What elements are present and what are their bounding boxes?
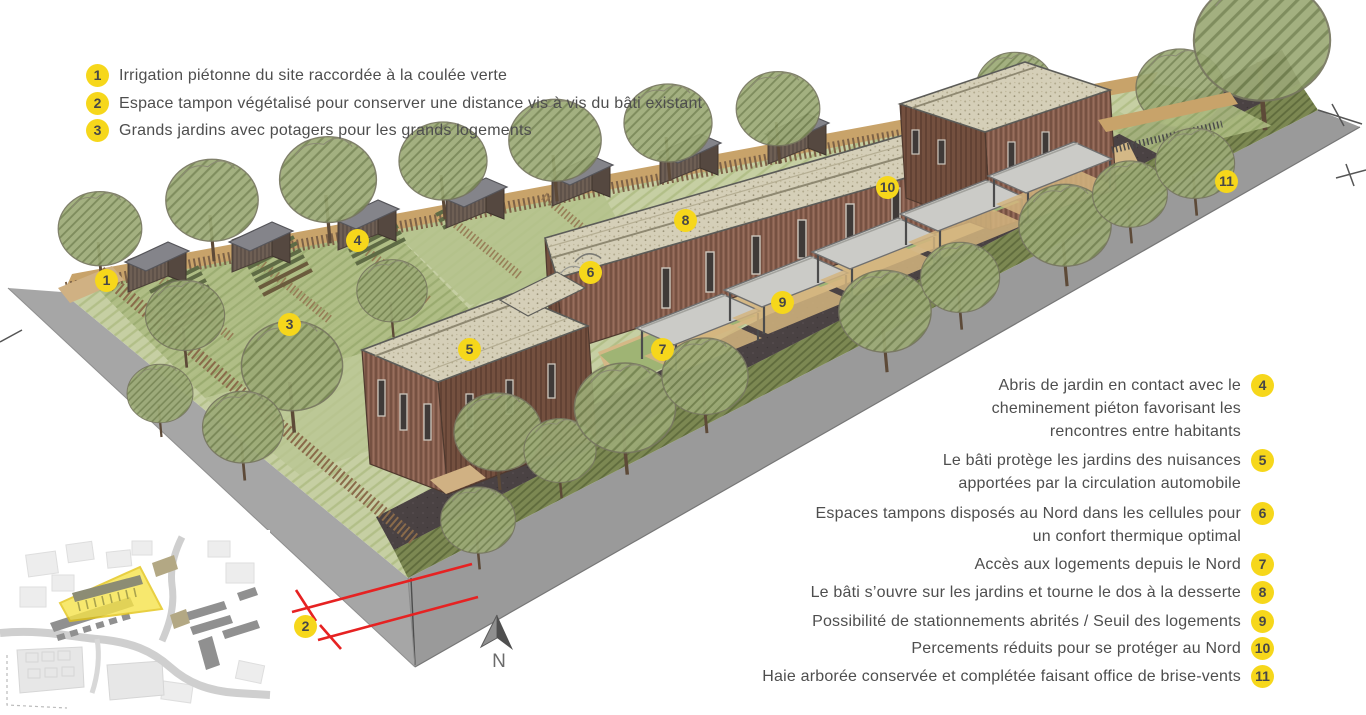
marker-badge-2: 2 [294,615,317,638]
marker-badge-5: 5 [458,338,481,361]
legend-badge-4: 4 [1251,374,1274,397]
legend-label-3: Grands jardins avec potagers pour les gr… [119,119,532,142]
marker-badge-3: 3 [278,313,301,336]
legend-badge-2: 2 [86,92,109,115]
legend-label-5: Le bâti protège les jardins des nuisance… [943,449,1241,495]
legend-label-8: Le bâti s’ouvre sur les jardins et tourn… [811,581,1241,604]
legend-item-7: Accès aux logements depuis le Nord 7 [975,553,1275,576]
legend-item-8: Le bâti s’ouvre sur les jardins et tourn… [811,581,1274,604]
legend-badge-5: 5 [1251,449,1274,472]
marker-badge-10: 10 [876,176,899,199]
legend-item-6: Espaces tampons disposés au Nord dans le… [816,502,1274,548]
legend-item-3: 3 Grands jardins avec potagers pour les … [86,119,532,142]
marker-badge-1: 1 [95,269,118,292]
legend-badge-11: 11 [1251,665,1274,688]
legend-item-9: Possibilité de stationnements abrités / … [812,610,1274,633]
inset-location-map [0,530,270,715]
legend-label-9: Possibilité de stationnements abrités / … [812,610,1241,633]
legend-badge-9: 9 [1251,610,1274,633]
legend-label-4: Abris de jardin en contact avec le chemi… [992,374,1241,443]
site-axonometric-diagram: 1 Irrigation piétonne du site raccordée … [0,0,1366,715]
legend-badge-7: 7 [1251,553,1274,576]
legend-item-11: Haie arborée conservée et complétée fais… [762,665,1274,688]
legend-item-2: 2 Espace tampon végétalisé pour conserve… [86,92,702,115]
legend-label-6: Espaces tampons disposés au Nord dans le… [816,502,1241,548]
marker-badge-6: 6 [579,261,602,284]
marker-badge-4: 4 [346,229,369,252]
legend-item-4: Abris de jardin en contact avec le chemi… [992,374,1274,443]
legend-item-10: Percements réduits pour se protéger au N… [911,637,1274,660]
legend-badge-8: 8 [1251,581,1274,604]
legend-badge-6: 6 [1251,502,1274,525]
legend-label-11: Haie arborée conservée et complétée fais… [762,665,1241,688]
marker-badge-8: 8 [674,209,697,232]
legend-label-7: Accès aux logements depuis le Nord [975,553,1242,576]
legend-label-2: Espace tampon végétalisé pour conserver … [119,92,702,115]
legend-item-5: Le bâti protège les jardins des nuisance… [943,449,1274,495]
legend-item-1: 1 Irrigation piétonne du site raccordée … [86,64,507,87]
legend-badge-1: 1 [86,64,109,87]
marker-badge-7: 7 [651,338,674,361]
legend-badge-3: 3 [86,119,109,142]
legend-badge-10: 10 [1251,637,1274,660]
legend-label-1: Irrigation piétonne du site raccordée à … [119,64,507,87]
legend-label-10: Percements réduits pour se protéger au N… [911,637,1241,660]
marker-badge-9: 9 [771,291,794,314]
north-label: N [487,651,511,673]
marker-badge-11: 11 [1215,170,1238,193]
